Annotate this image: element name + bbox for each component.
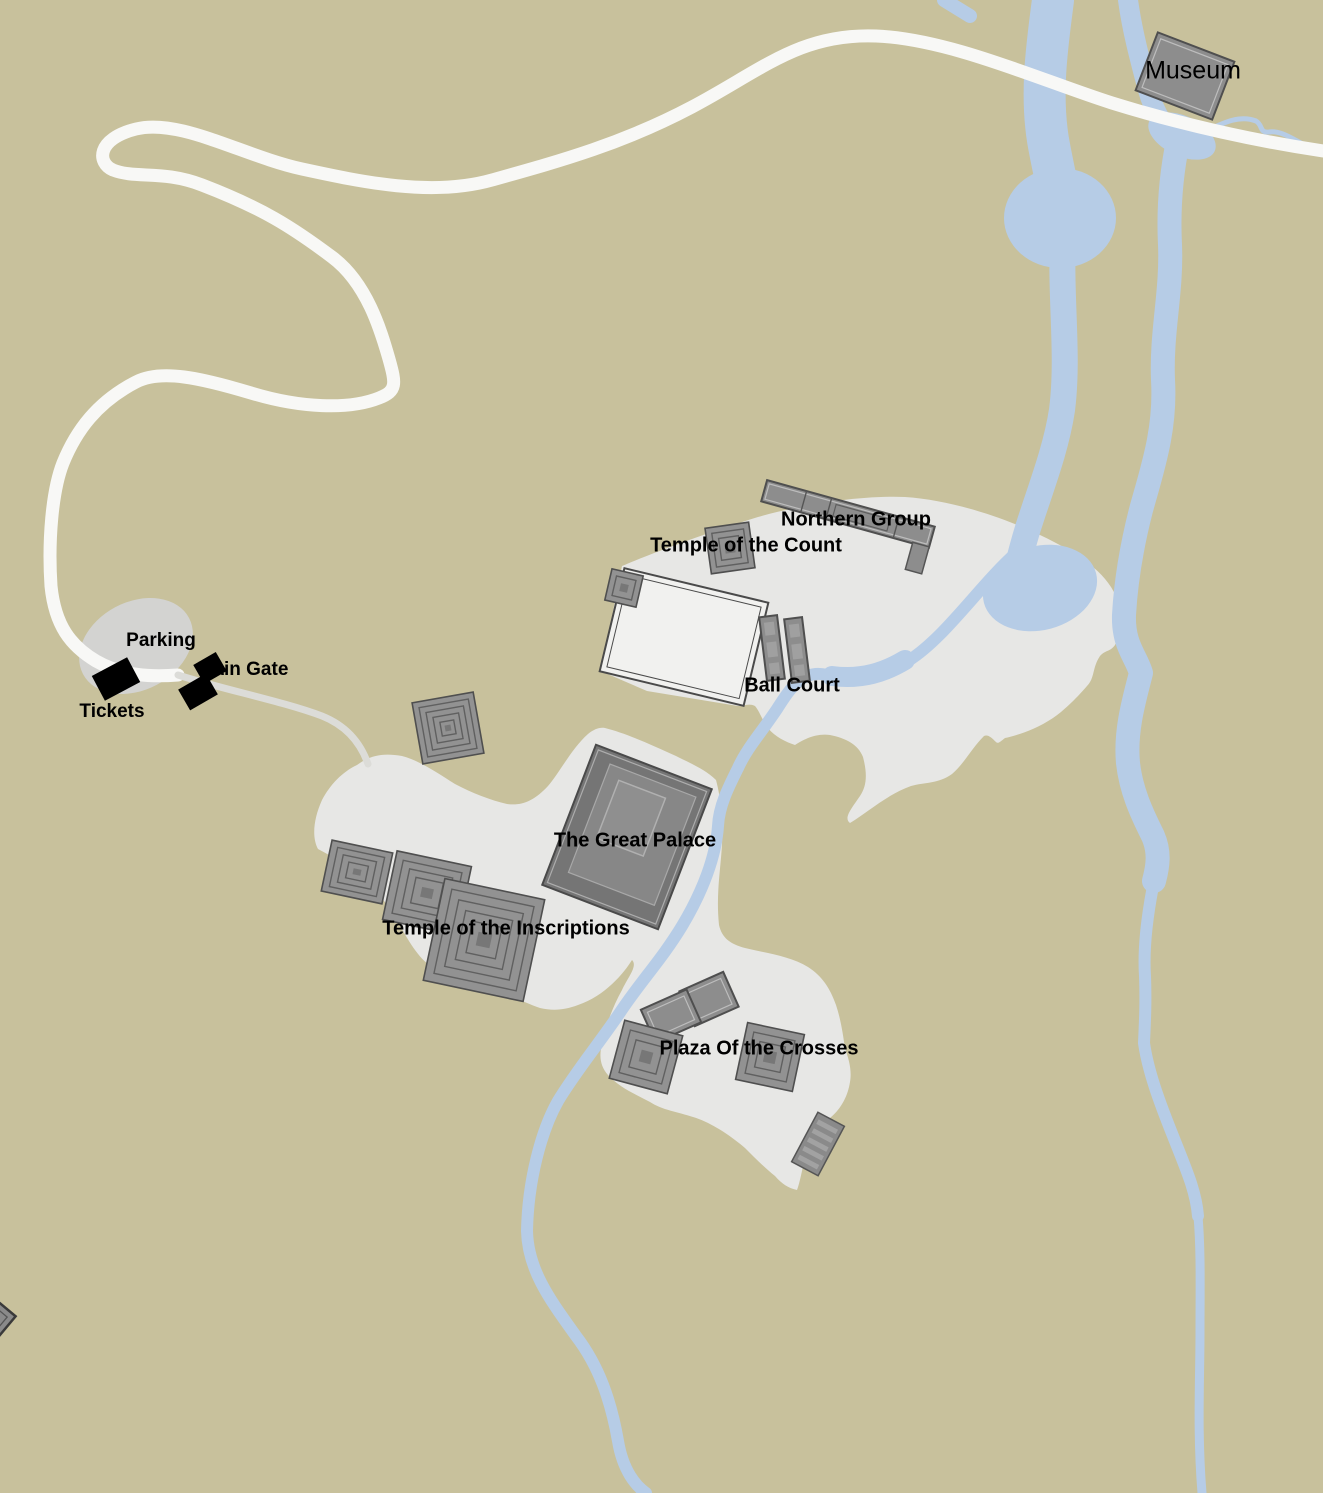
trail-pyramid <box>412 692 484 764</box>
crosses-pyramid-east <box>736 1023 805 1092</box>
plaza-corner-pyramid <box>605 569 643 607</box>
map-canvas: Museum Northern Group Temple of the Coun… <box>0 0 1323 1493</box>
temple-of-the-count-pyramid <box>705 522 755 574</box>
site-map <box>0 0 1323 1493</box>
